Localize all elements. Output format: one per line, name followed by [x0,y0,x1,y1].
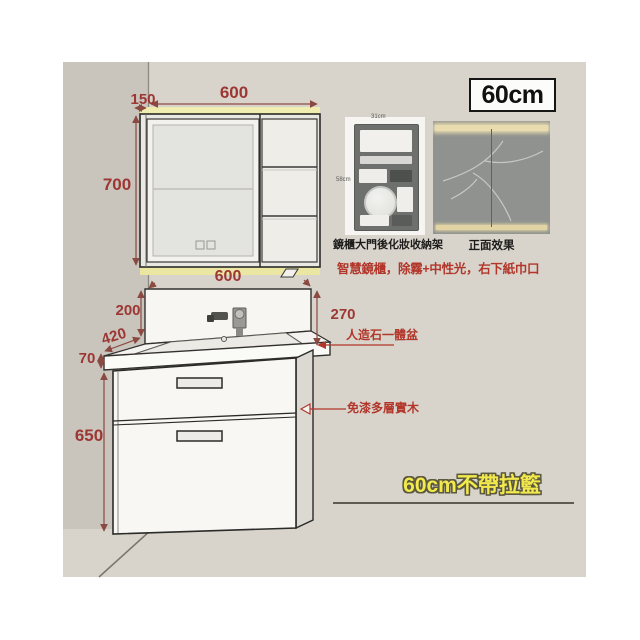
dim-counter-height: 70 [72,351,102,367]
size-badge: 60cm [469,78,556,112]
dim-mirror-height: 700 [99,176,135,194]
dim-mirror-width: 600 [199,84,269,102]
product-diagram-image: 60cm 31cm 58cm 150 6 [0,0,640,640]
caption-front-view: 正面效果 [433,240,550,252]
dim-counter-width: 600 [196,269,260,286]
makeup-organizer-rack [354,124,419,231]
photo-front-view [433,121,550,234]
organizer-tray [392,215,412,226]
organizer-tray [397,187,413,212]
note-smart-mirror: 智慧鏡櫃，除霧+中性光，右下紙巾口 [337,263,539,276]
label-wood-material: 免漆多層實木 [347,402,419,415]
variant-note: 60cm不帶拉籃 [392,475,552,497]
wall-corner-shade [63,62,148,529]
organizer-tray [360,156,412,164]
organizer-width-label: 31cm [371,114,386,120]
dim-cabinet-height: 650 [72,427,106,445]
dim-splash-right: 270 [324,307,362,323]
organizer-tray [360,215,389,226]
caption-door-organizer: 鏡櫃大門後化妝收納架 [333,240,439,252]
organizer-brush-holder [390,170,412,182]
dim-splash-left: 200 [111,303,145,319]
photo-door-organizer: 31cm 58cm [345,117,425,235]
organizer-lipstick-holder [359,169,387,183]
size-badge-label: 60cm [482,81,544,110]
organizer-height-label: 58cm [336,177,351,183]
organizer-tray [360,130,412,152]
mirror-door-split-line [491,129,492,227]
dim-mirror-depth: 150 [124,92,162,108]
label-basin-material: 人造石一體盆 [346,329,418,342]
